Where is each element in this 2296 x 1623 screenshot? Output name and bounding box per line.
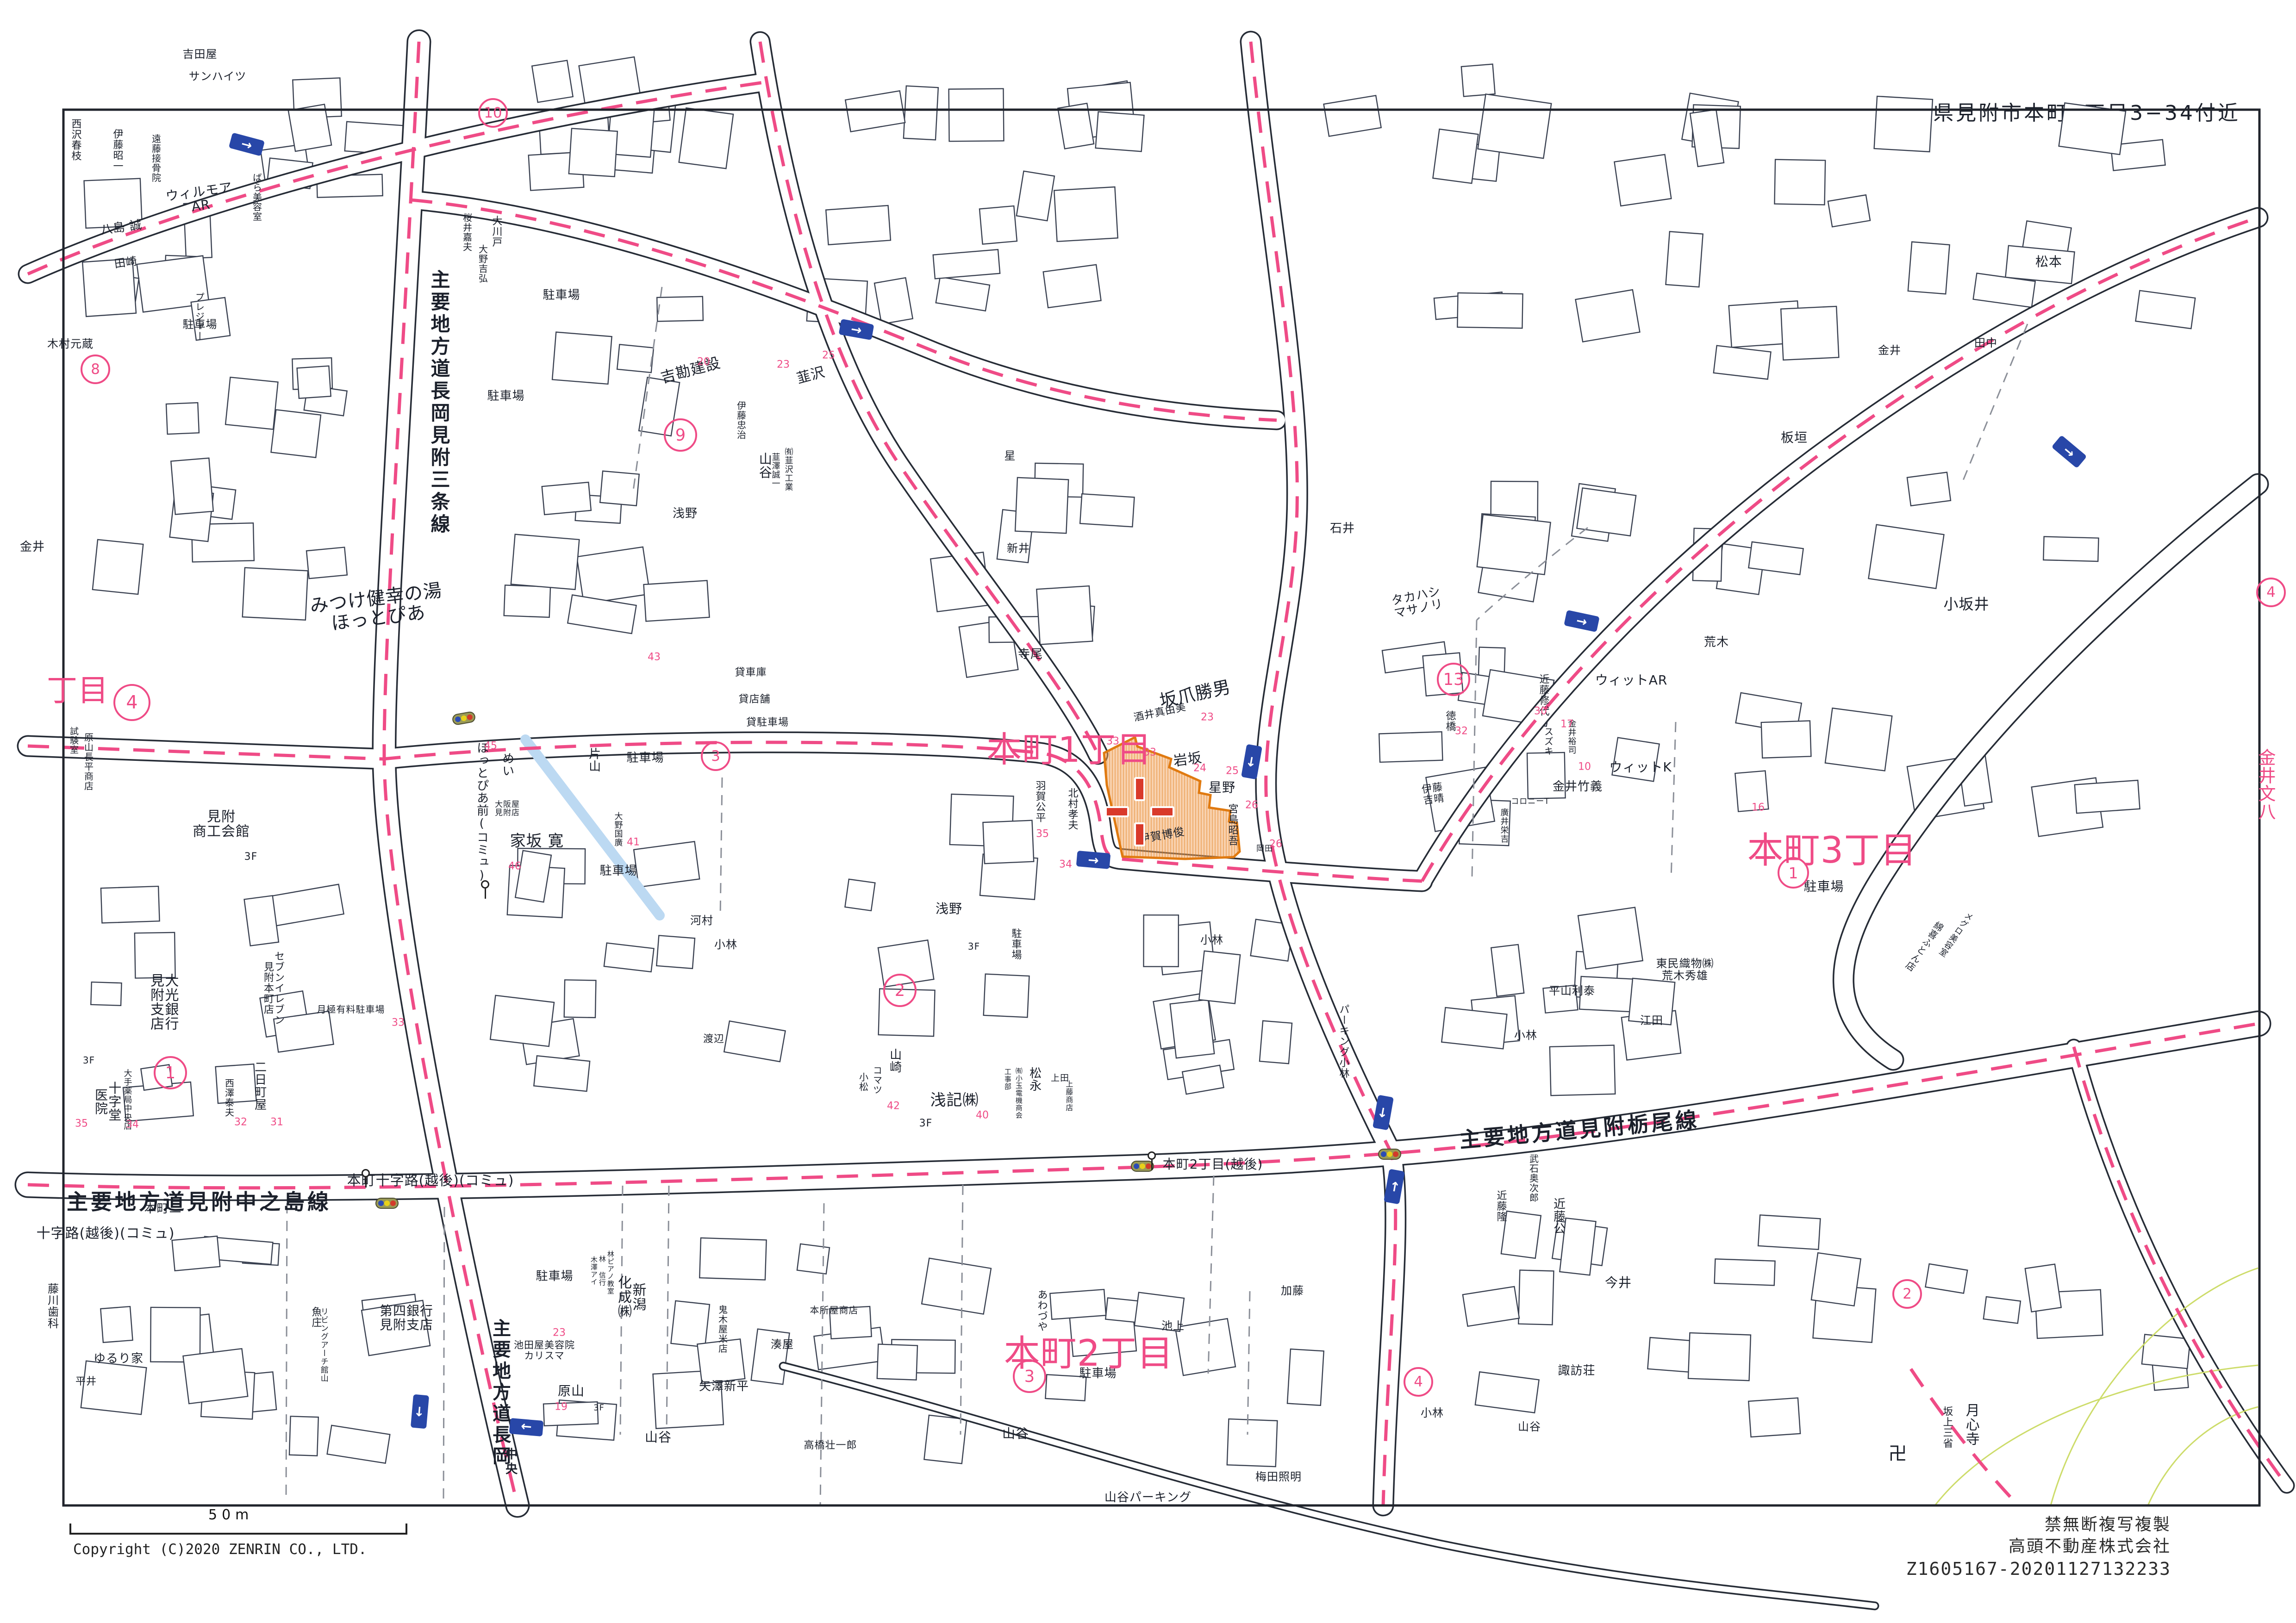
bus-stop-icon: [362, 1169, 370, 1188]
one-way-arrow-icon: →: [2051, 435, 2087, 468]
traffic-signal-icon: [375, 1198, 399, 1209]
one-way-arrow-icon: →: [1076, 851, 1111, 869]
traffic-signal-icon: [1378, 1149, 1401, 1160]
target-cross-marker: [1105, 777, 1174, 846]
zenrin-map-page: 吉田屋サンハイツ西沢春枝伊藤昭一遠藤接骨院ウィルモア ARばら美容室八島 誠田崎…: [0, 0, 2296, 1623]
map-marker-layer: →→→→→→→→→→: [0, 0, 2296, 1623]
one-way-arrow-icon: →: [1384, 1169, 1405, 1205]
one-way-arrow-icon: →: [839, 319, 874, 340]
one-way-arrow-icon: →: [229, 132, 265, 156]
bus-stop-icon: [1148, 1151, 1156, 1170]
bus-stop-icon: [481, 880, 489, 899]
one-way-arrow-icon: →: [411, 1394, 429, 1429]
one-way-arrow-icon: →: [509, 1418, 544, 1436]
one-way-arrow-icon: →: [1564, 610, 1599, 632]
one-way-arrow-icon: →: [1241, 744, 1262, 780]
one-way-arrow-icon: →: [1373, 1095, 1394, 1131]
traffic-signal-icon: [451, 711, 476, 726]
